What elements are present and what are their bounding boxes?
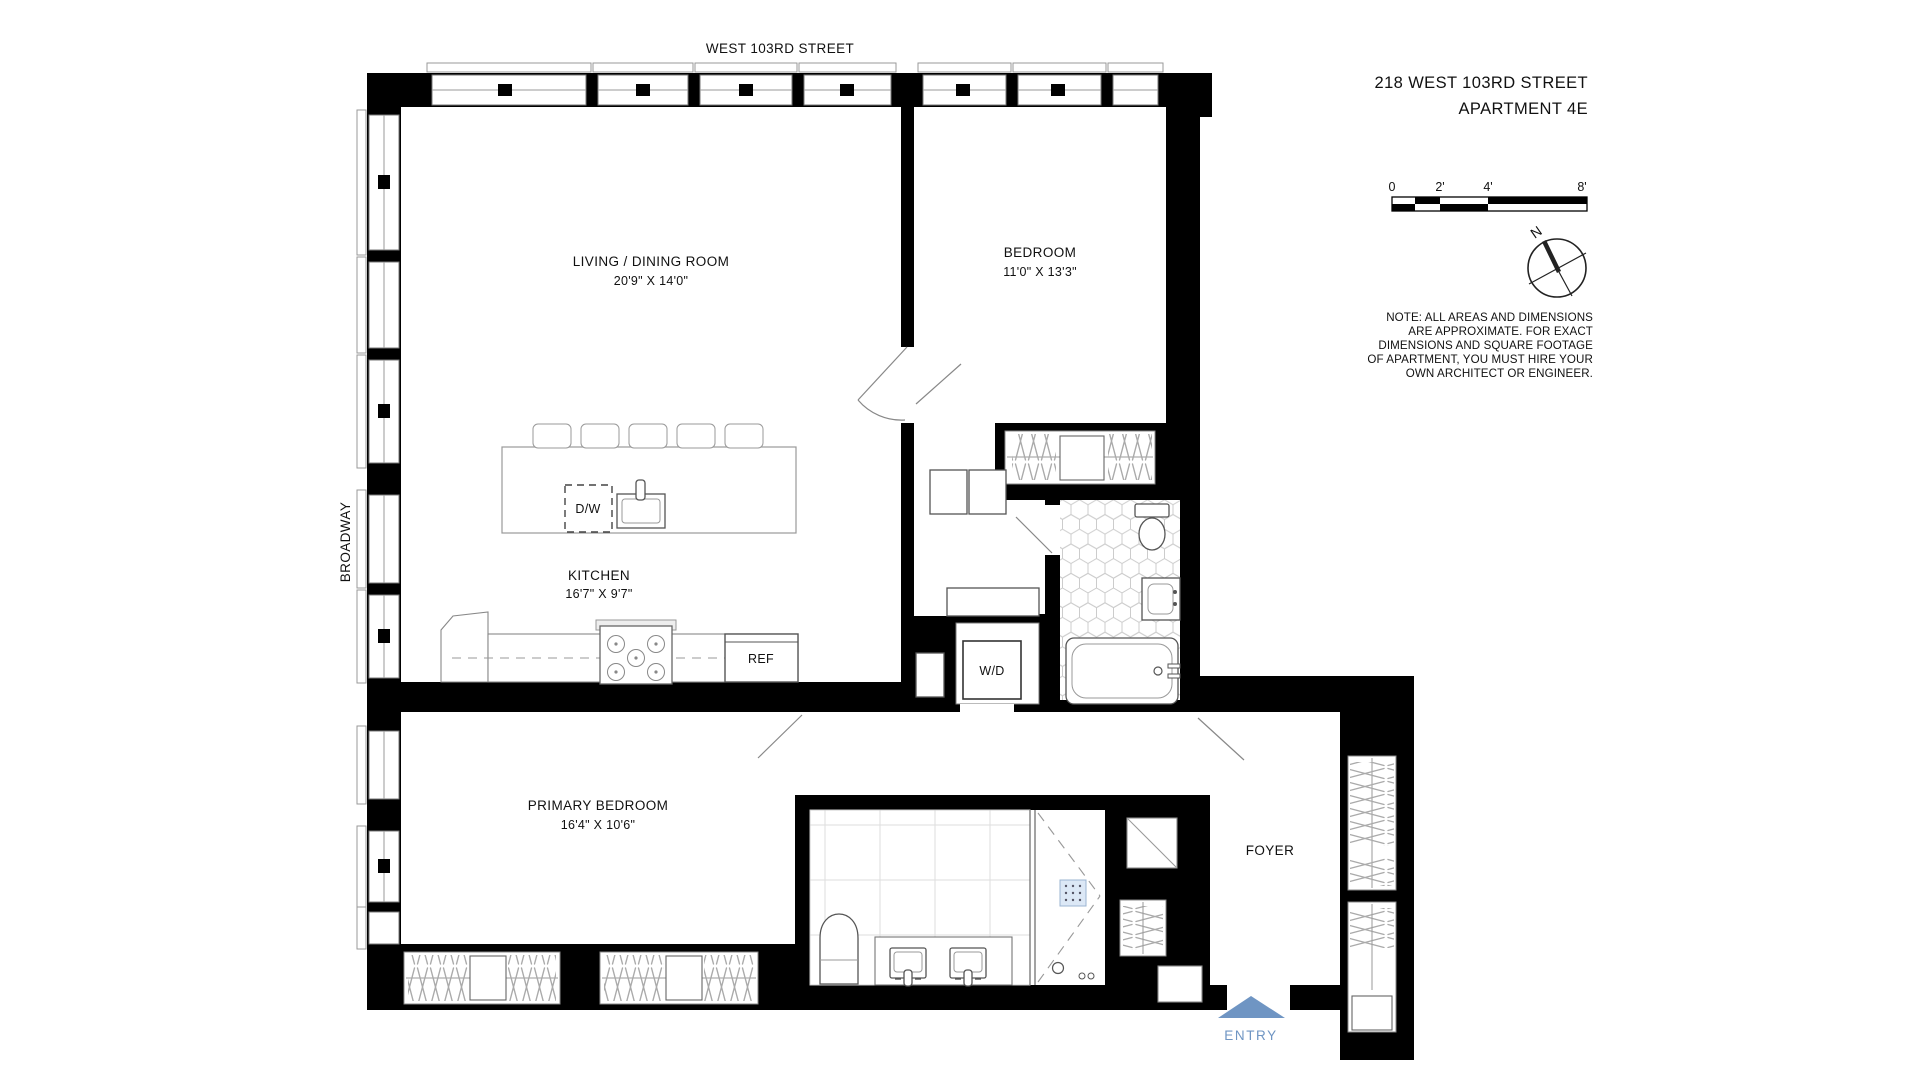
foyer-label: FOYER <box>1246 843 1295 858</box>
kitchen-dims: 16'7" X 9'7" <box>565 587 632 601</box>
page-title-line1: 218 WEST 103RD STREET <box>1375 74 1589 92</box>
bathtub-icon <box>1066 638 1180 704</box>
primary-bedroom-label: PRIMARY BEDROOM <box>528 798 669 813</box>
living-room-label: LIVING / DINING ROOM <box>573 254 730 269</box>
stool-icons <box>533 424 763 448</box>
kitchen-fixtures <box>441 424 798 684</box>
entry-marker: ENTRY <box>1218 985 1290 1043</box>
compass-north-label: N <box>1527 223 1544 242</box>
svg-text:8': 8' <box>1577 180 1586 194</box>
svg-text:DIMENSIONS AND SQUARE FOOTAGE: DIMENSIONS AND SQUARE FOOTAGE <box>1378 339 1593 352</box>
svg-text:OWN ARCHITECT OR ENGINEER.: OWN ARCHITECT OR ENGINEER. <box>1406 367 1593 380</box>
svg-text:NOTE: ALL AREAS AND DIMENSIONS: NOTE: ALL AREAS AND DIMENSIONS <box>1386 311 1593 324</box>
shower <box>1030 810 1105 985</box>
hall-closet-small <box>1120 900 1166 956</box>
compass-icon: N <box>1527 223 1586 297</box>
showerhead-icon <box>1060 880 1086 906</box>
bedroom-closet <box>1005 431 1155 484</box>
dishwasher-label: D/W <box>575 502 600 516</box>
double-vanity <box>875 937 1012 986</box>
living-room-dims: 20'9" X 14'0" <box>614 274 689 288</box>
svg-text:4': 4' <box>1483 180 1492 194</box>
drain-icon <box>1053 963 1064 974</box>
svg-text:OF APARTMENT, YOU MUST HIRE YO: OF APARTMENT, YOU MUST HIRE YOUR <box>1367 353 1593 366</box>
street-label-top: WEST 103RD STREET <box>706 41 854 56</box>
floor-plan-sheet: ENTRY WEST 103RD STREET BROADWAY LIVING … <box>0 0 1920 1080</box>
street-label-left: BROADWAY <box>338 502 353 582</box>
primary-toilet-icon <box>820 914 858 984</box>
svg-text:2': 2' <box>1435 180 1444 194</box>
stove-icon <box>596 620 676 684</box>
washer-dryer-label: W/D <box>979 664 1004 678</box>
page-title-line2: APARTMENT 4E <box>1458 100 1588 118</box>
scale-bar: 0 2' 4' 8' <box>1389 180 1587 211</box>
bath-sink-icon <box>1142 578 1180 620</box>
bedroom-label: BEDROOM <box>1004 245 1077 260</box>
primary-bedroom-dims: 16'4" X 10'6" <box>561 818 636 832</box>
entry-label: ENTRY <box>1224 1028 1278 1043</box>
kitchen-label: KITCHEN <box>568 568 630 583</box>
note-text: NOTE: ALL AREAS AND DIMENSIONS ARE APPRO… <box>1367 311 1593 380</box>
svg-text:0: 0 <box>1389 180 1396 194</box>
title-block: 218 WEST 103RD STREET APARTMENT 4E <box>1375 74 1589 118</box>
floor-plan-svg: ENTRY WEST 103RD STREET BROADWAY LIVING … <box>0 0 1920 1080</box>
bedroom-dims: 11'0" X 13'3" <box>1003 265 1077 279</box>
entry-shelf-box <box>1158 966 1202 1002</box>
corner-cabinet <box>441 612 488 682</box>
linen-closet <box>1127 818 1177 868</box>
refrigerator-label: REF <box>748 652 774 666</box>
svg-text:ARE APPROXIMATE. FOR EXACT: ARE APPROXIMATE. FOR EXACT <box>1408 325 1593 338</box>
